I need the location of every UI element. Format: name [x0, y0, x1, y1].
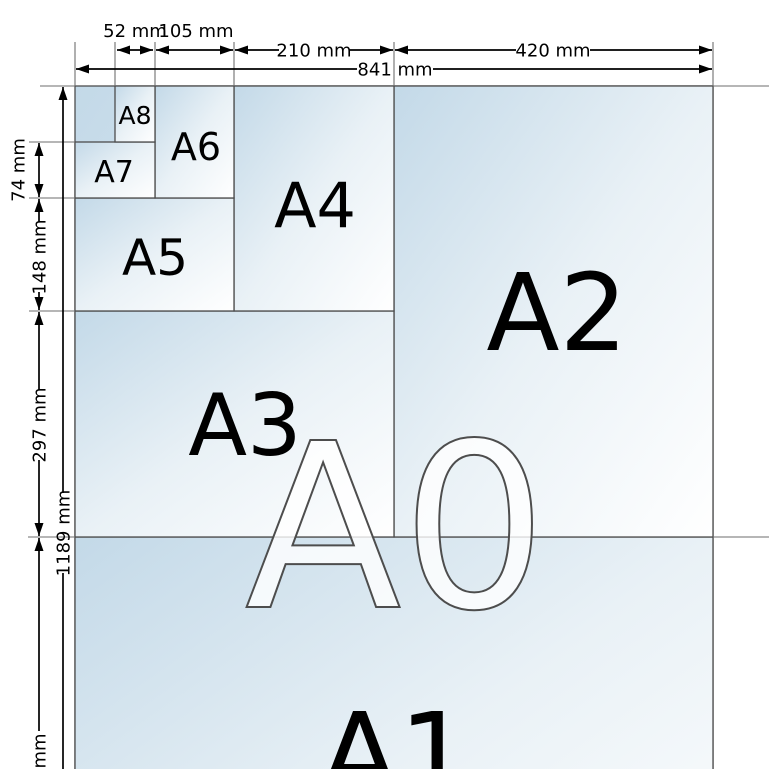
sheet-label-a6: A6 [171, 125, 221, 169]
dim-label-297mm: 297 mm [29, 387, 50, 462]
dim-label-52mm: 52 mm [103, 21, 167, 42]
sheet-label-a2: A2 [486, 252, 627, 376]
sheet-label-a5: A5 [122, 229, 188, 287]
dim-label-105mm: 105 mm [158, 21, 233, 42]
dim-label-210mm: 210 mm [276, 40, 351, 61]
sheet-label-a4: A4 [274, 169, 356, 242]
dim-label-594mm: 594 mm [29, 733, 50, 769]
sheet-label-a3: A3 [188, 376, 302, 476]
diagram-canvas: A0 A8 A7 A6 A5 A4 A3 A2 A1 [0, 0, 769, 769]
dim-label-148mm: 148 mm [29, 219, 50, 294]
dim-label-841mm: 841 mm [357, 59, 432, 80]
sheet-label-a7: A7 [94, 155, 134, 190]
paper-size-diagram: A0 A8 A7 A6 A5 A4 A3 A2 A1 [0, 0, 769, 769]
dim-label-1189mm: 1189 mm [53, 490, 74, 577]
dim-label-74mm: 74 mm [8, 138, 29, 202]
dim-label-420mm: 420 mm [515, 40, 590, 61]
sheet-label-a8: A8 [118, 101, 151, 130]
sheet-label-a1: A1 [320, 689, 472, 769]
